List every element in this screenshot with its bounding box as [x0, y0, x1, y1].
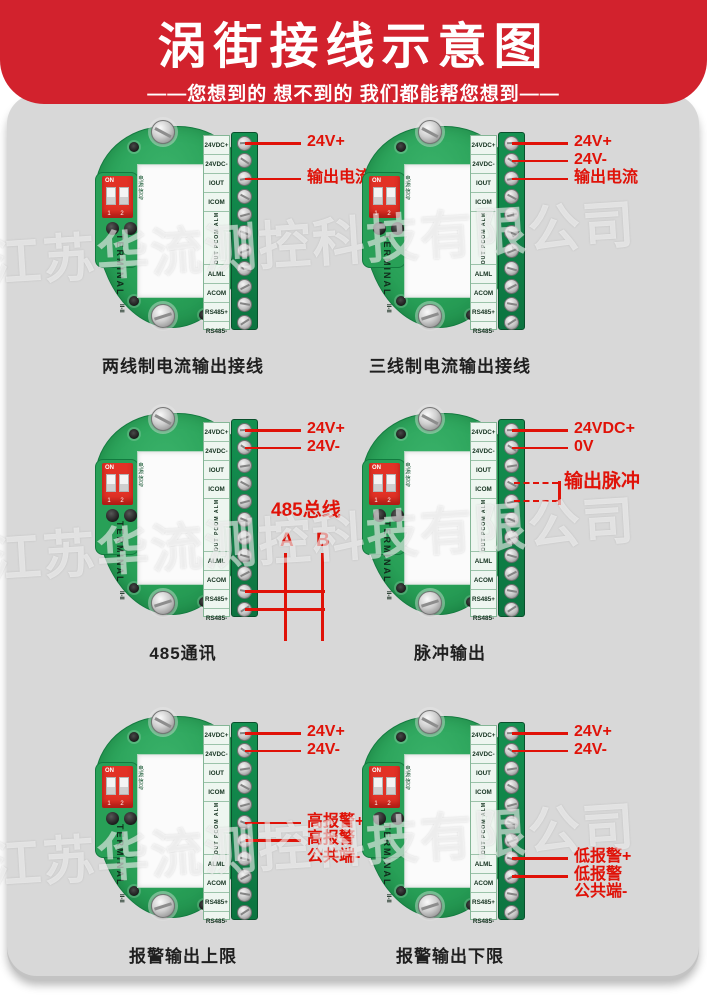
annotation-label: 24V-	[307, 741, 340, 758]
bus-wire-b-label: B	[316, 531, 330, 552]
annotation-label: 24V+	[574, 133, 612, 150]
pulse-dashed-line	[514, 482, 558, 484]
pcb-board: ON1 2电源信号TERMINALII-II24VDC+24VDC-IOUTIC…	[362, 708, 530, 923]
annotation-label: 0V	[574, 438, 594, 455]
pcb-board: ON1 2电源信号TERMINALII-II24VDC+24VDC-IOUTIC…	[95, 118, 263, 333]
annotation-layer: 24V+24V-低报警+低报警公共端-	[362, 708, 530, 923]
header-banner: 涡街接线示意图 ——您想到的 想不到的 我们都能帮您想到——	[0, 0, 707, 104]
module-caption: 报警输出上限	[33, 942, 333, 967]
pcb-board-mount: ON1 2电源信号TERMINALII-II24VDC+24VDC-IOUTIC…	[95, 708, 263, 923]
module-caption: 两线制电流输出接线	[33, 352, 333, 377]
bus-terminal-line	[245, 608, 325, 611]
pcb-module-rs485-comm: ON1 2电源信号TERMINALII-II24VDC+24VDC-IOUTIC…	[95, 405, 263, 620]
annotation-line	[512, 875, 568, 878]
annotation-line	[245, 447, 301, 450]
annotation-label-line2: 公共端-	[307, 848, 360, 865]
pcb-board: ON1 2电源信号TERMINALII-II24VDC+24VDC-IOUTIC…	[362, 118, 530, 333]
annotation-line	[512, 429, 568, 432]
annotation-label: 低报警+	[574, 848, 631, 865]
module-caption: 报警输出下限	[300, 942, 600, 967]
pcb-board-mount: ON1 2电源信号TERMINALII-II24VDC+24VDC-IOUTIC…	[95, 118, 263, 333]
module-caption: 脉冲输出	[300, 639, 600, 664]
page: { "page": {"bg": "#ffffff", "panel_bg": …	[0, 0, 707, 1000]
bus-label: 485总线	[271, 501, 341, 522]
annotation-label: 24V+	[307, 133, 345, 150]
annotation-label: 24V-	[574, 741, 607, 758]
annotation-line	[512, 178, 568, 181]
annotation-label: 高报警公共端-	[307, 830, 360, 865]
annotation-line	[245, 732, 301, 735]
bus-terminal-line	[245, 590, 325, 593]
pcb-board-mount: ON1 2电源信号TERMINALII-II24VDC+24VDC-IOUTIC…	[362, 118, 530, 333]
pcb-module-pulse-output: ON1 2电源信号TERMINALII-II24VDC+24VDC-IOUTIC…	[362, 405, 530, 620]
annotation-line	[512, 732, 568, 735]
pulse-bracket	[558, 481, 561, 505]
annotation-label: 低报警公共端-	[574, 866, 627, 901]
pcb-board-mount: ON1 2电源信号TERMINALII-II24VDC+24VDC-IOUTIC…	[362, 708, 530, 923]
module-caption: 三线制电流输出接线	[300, 352, 600, 377]
annotation-line	[245, 178, 301, 181]
page-title: 涡街接线示意图	[0, 0, 707, 78]
annotation-layer: 24V+24V-输出电流	[362, 118, 530, 333]
annotation-label: 24V+	[307, 420, 345, 437]
annotation-line	[245, 839, 301, 842]
annotation-layer: 24V+输出电流	[95, 118, 263, 333]
page-subtitle: ——您想到的 想不到的 我们都能帮您想到——	[0, 79, 707, 106]
annotation-label: 24V+	[307, 723, 345, 740]
annotation-line	[245, 429, 301, 432]
pcb-board: ON1 2电源信号TERMINALII-II24VDC+24VDC-IOUTIC…	[362, 405, 530, 620]
bus-wire-a	[284, 553, 287, 641]
annotation-line	[512, 142, 568, 145]
pcb-board-mount: ON1 2电源信号TERMINALII-II24VDC+24VDC-IOUTIC…	[95, 405, 263, 620]
pcb-board: ON1 2电源信号TERMINALII-II24VDC+24VDC-IOUTIC…	[95, 708, 263, 923]
annotation-label: 24V-	[307, 438, 340, 455]
annotation-label: 高报警+	[307, 813, 364, 830]
pcb-board: ON1 2电源信号TERMINALII-II24VDC+24VDC-IOUTIC…	[95, 405, 263, 620]
annotation-label: 24V-	[574, 151, 607, 168]
annotation-layer: 24VDC+0V输出脉冲	[362, 405, 530, 620]
annotation-line	[245, 822, 301, 825]
pcb-board-mount: ON1 2电源信号TERMINALII-II24VDC+24VDC-IOUTIC…	[362, 405, 530, 620]
pcb-module-three-wire-current: ON1 2电源信号TERMINALII-II24VDC+24VDC-IOUTIC…	[362, 118, 530, 333]
annotation-layer: 24V+24V-485总线AB	[95, 405, 263, 620]
annotation-line	[512, 750, 568, 753]
annotation-line	[512, 447, 568, 450]
pcb-module-two-wire-current: ON1 2电源信号TERMINALII-II24VDC+24VDC-IOUTIC…	[95, 118, 263, 333]
annotation-label: 输出电流	[574, 169, 638, 186]
annotation-label-line2: 公共端-	[574, 883, 627, 900]
pcb-module-alarm-high: ON1 2电源信号TERMINALII-II24VDC+24VDC-IOUTIC…	[95, 708, 263, 923]
annotation-label: 24VDC+	[574, 420, 635, 437]
annotation-line	[245, 750, 301, 753]
annotation-label: 24V+	[574, 723, 612, 740]
annotation-line	[512, 160, 568, 163]
bus-wire-b	[321, 553, 324, 641]
annotation-layer: 24V+24V-高报警+高报警公共端-	[95, 708, 263, 923]
pcb-module-alarm-low: ON1 2电源信号TERMINALII-II24VDC+24VDC-IOUTIC…	[362, 708, 530, 923]
bus-wire-a-label: A	[280, 531, 294, 552]
pulse-label: 输出脉冲	[564, 472, 640, 493]
module-caption: 485通讯	[33, 639, 333, 664]
pulse-dashed-line	[514, 500, 558, 502]
annotation-line	[245, 142, 301, 145]
annotation-line	[512, 857, 568, 860]
